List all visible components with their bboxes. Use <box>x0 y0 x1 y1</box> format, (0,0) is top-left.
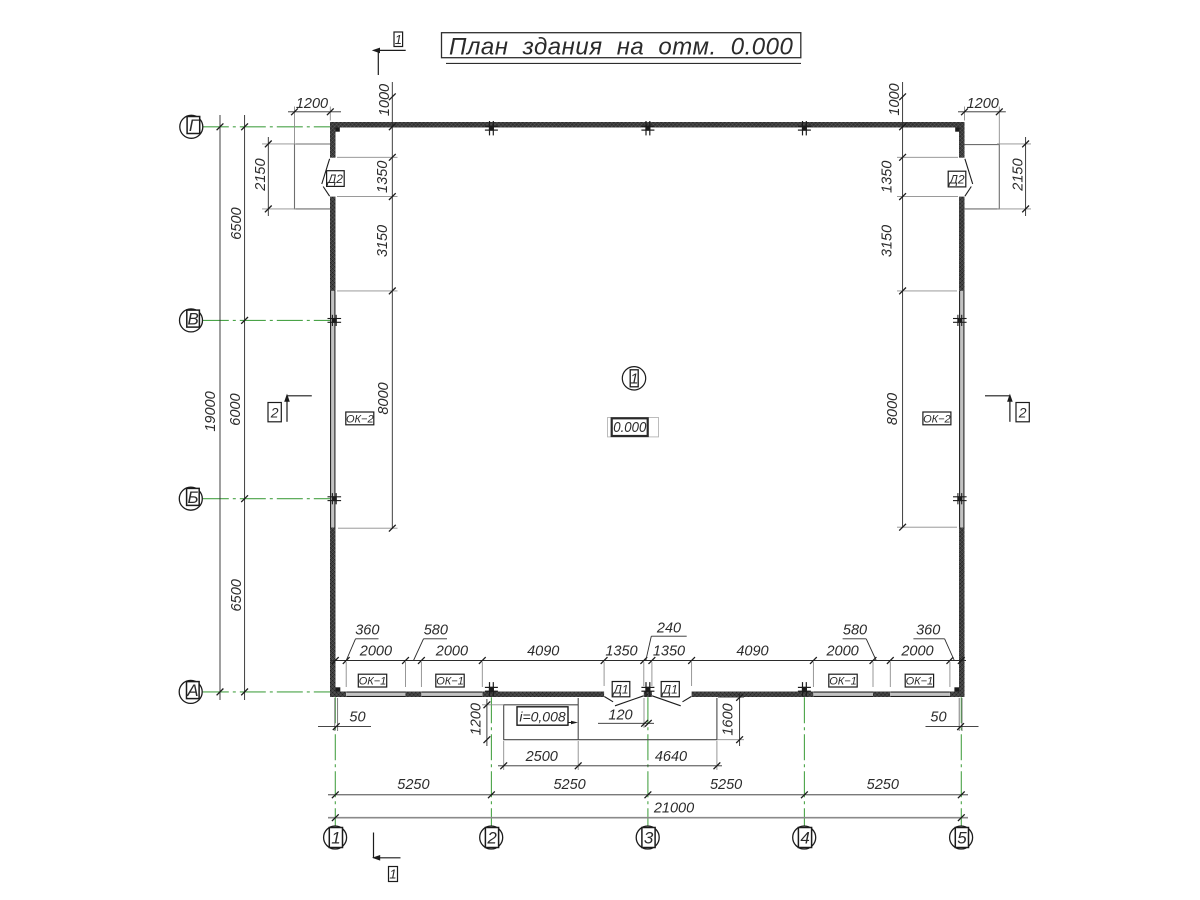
svg-text:0.000: 0.000 <box>613 419 647 436</box>
svg-text:i=0,008: i=0,008 <box>519 709 566 725</box>
svg-text:5250: 5250 <box>553 777 585 793</box>
svg-text:3150: 3150 <box>375 225 391 257</box>
svg-text:2000: 2000 <box>359 643 392 659</box>
svg-text:1200: 1200 <box>296 96 328 112</box>
svg-text:2500: 2500 <box>525 749 558 765</box>
svg-text:2: 2 <box>270 405 279 421</box>
svg-text:1200: 1200 <box>468 703 484 735</box>
svg-text:6500: 6500 <box>229 579 245 611</box>
svg-text:2150: 2150 <box>253 158 269 191</box>
svg-text:3: 3 <box>644 828 654 847</box>
svg-text:5250: 5250 <box>397 777 429 793</box>
svg-text:ОК−1: ОК−1 <box>436 676 464 688</box>
svg-text:План здания на отм. 0.000: План здания на отм. 0.000 <box>449 33 793 60</box>
svg-text:2: 2 <box>1018 405 1027 421</box>
svg-text:6500: 6500 <box>229 207 245 239</box>
svg-text:580: 580 <box>843 623 867 639</box>
svg-text:2: 2 <box>486 828 497 847</box>
svg-text:ОК−2: ОК−2 <box>923 413 951 425</box>
svg-text:360: 360 <box>355 623 379 639</box>
svg-text:1000: 1000 <box>377 84 393 116</box>
svg-text:1350: 1350 <box>375 161 391 193</box>
svg-text:3150: 3150 <box>880 225 896 257</box>
svg-text:5250: 5250 <box>710 777 742 793</box>
svg-text:5250: 5250 <box>867 777 899 793</box>
svg-text:240: 240 <box>656 620 681 636</box>
svg-text:1: 1 <box>395 32 402 47</box>
svg-text:6000: 6000 <box>228 393 244 425</box>
svg-text:2150: 2150 <box>1010 158 1026 191</box>
svg-text:ОК−1: ОК−1 <box>359 676 387 688</box>
svg-text:2000: 2000 <box>435 643 468 659</box>
svg-text:1: 1 <box>389 867 396 882</box>
svg-text:В: В <box>188 310 199 329</box>
svg-text:Д1: Д1 <box>661 683 678 697</box>
svg-text:4090: 4090 <box>527 643 559 659</box>
svg-text:1: 1 <box>630 371 638 388</box>
svg-text:8000: 8000 <box>885 393 901 425</box>
svg-text:50: 50 <box>930 710 946 726</box>
svg-text:360: 360 <box>916 623 940 639</box>
svg-text:1: 1 <box>331 828 340 847</box>
svg-text:ОК−2: ОК−2 <box>346 413 374 425</box>
svg-text:120: 120 <box>608 707 632 723</box>
svg-text:1600: 1600 <box>721 703 737 735</box>
svg-text:2000: 2000 <box>900 643 933 659</box>
svg-text:Б: Б <box>187 488 198 507</box>
svg-text:1200: 1200 <box>967 96 999 112</box>
svg-text:Д2: Д2 <box>326 172 343 186</box>
svg-text:19000: 19000 <box>203 391 219 431</box>
svg-text:580: 580 <box>424 623 448 639</box>
svg-text:ОК−1: ОК−1 <box>906 676 934 688</box>
svg-text:8000: 8000 <box>376 382 392 414</box>
svg-text:4: 4 <box>800 828 809 847</box>
svg-text:1350: 1350 <box>653 643 685 659</box>
svg-text:1350: 1350 <box>605 643 637 659</box>
svg-text:1350: 1350 <box>880 161 896 193</box>
svg-text:Д1: Д1 <box>611 683 628 697</box>
svg-text:4640: 4640 <box>655 749 687 765</box>
svg-text:50: 50 <box>349 710 365 726</box>
svg-text:А: А <box>186 681 198 700</box>
svg-text:Д2: Д2 <box>947 172 964 186</box>
svg-text:21000: 21000 <box>653 800 694 816</box>
svg-text:2000: 2000 <box>825 643 858 659</box>
svg-text:ОК−1: ОК−1 <box>829 676 857 688</box>
svg-text:1000: 1000 <box>887 83 903 115</box>
svg-text:5: 5 <box>957 828 967 847</box>
svg-text:4090: 4090 <box>736 643 768 659</box>
